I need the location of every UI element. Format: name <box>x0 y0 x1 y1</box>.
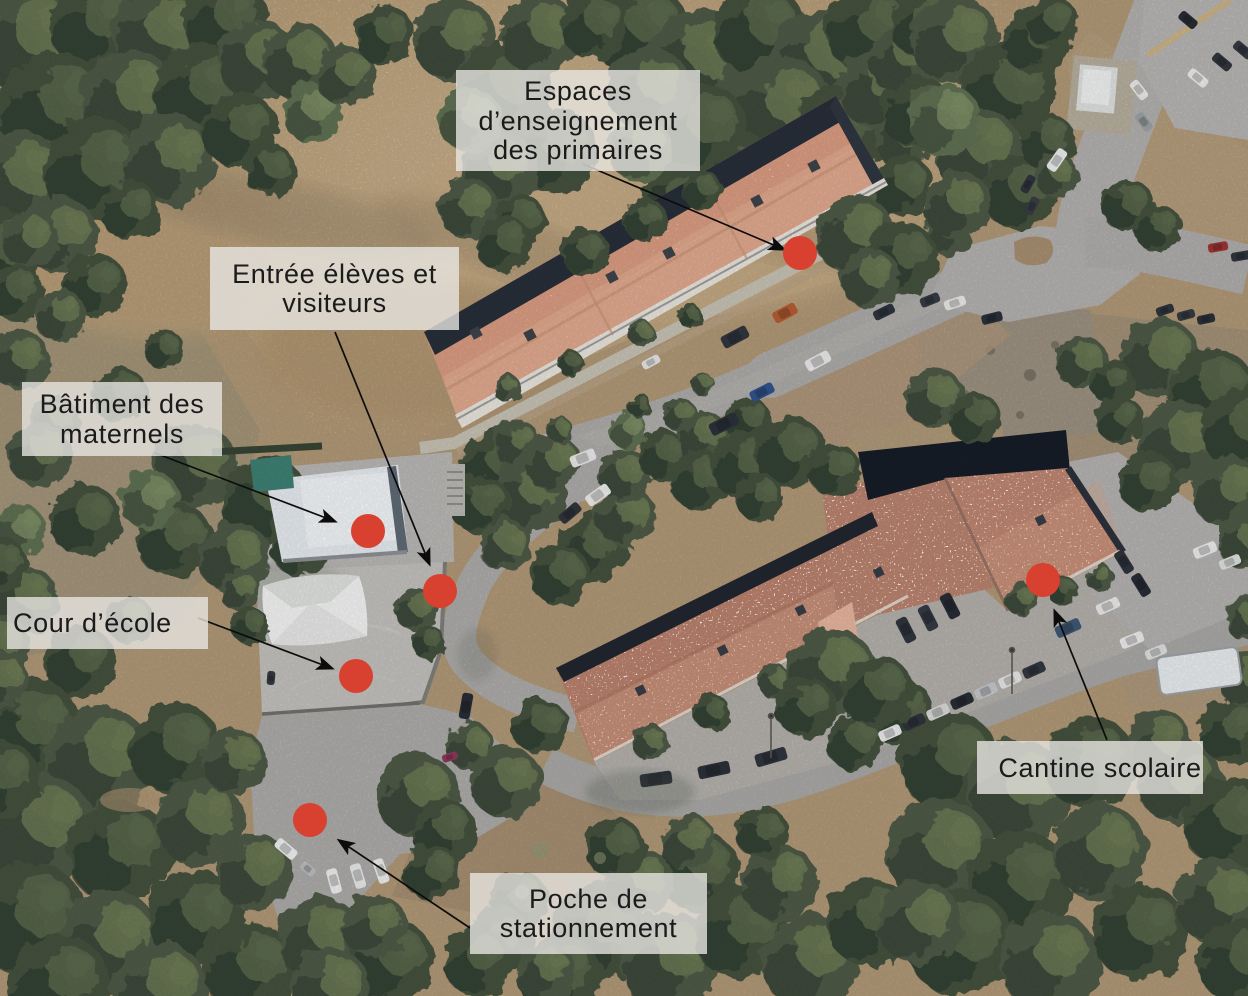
svg-text:Espaces: Espaces <box>524 76 632 106</box>
svg-text:Cantine scolaire: Cantine scolaire <box>998 753 1201 783</box>
svg-text:maternels: maternels <box>60 419 184 449</box>
svg-text:Poche de: Poche de <box>529 884 648 914</box>
svg-text:des primaires: des primaires <box>493 135 663 165</box>
svg-text:Entrée élèves et: Entrée élèves et <box>232 259 437 289</box>
svg-text:Cour d’école: Cour d’école <box>13 608 172 638</box>
svg-text:d’enseignement: d’enseignement <box>478 106 677 136</box>
svg-text:Bâtiment des: Bâtiment des <box>40 389 205 419</box>
svg-text:visiteurs: visiteurs <box>282 288 386 318</box>
svg-text:stationnement: stationnement <box>500 913 677 943</box>
